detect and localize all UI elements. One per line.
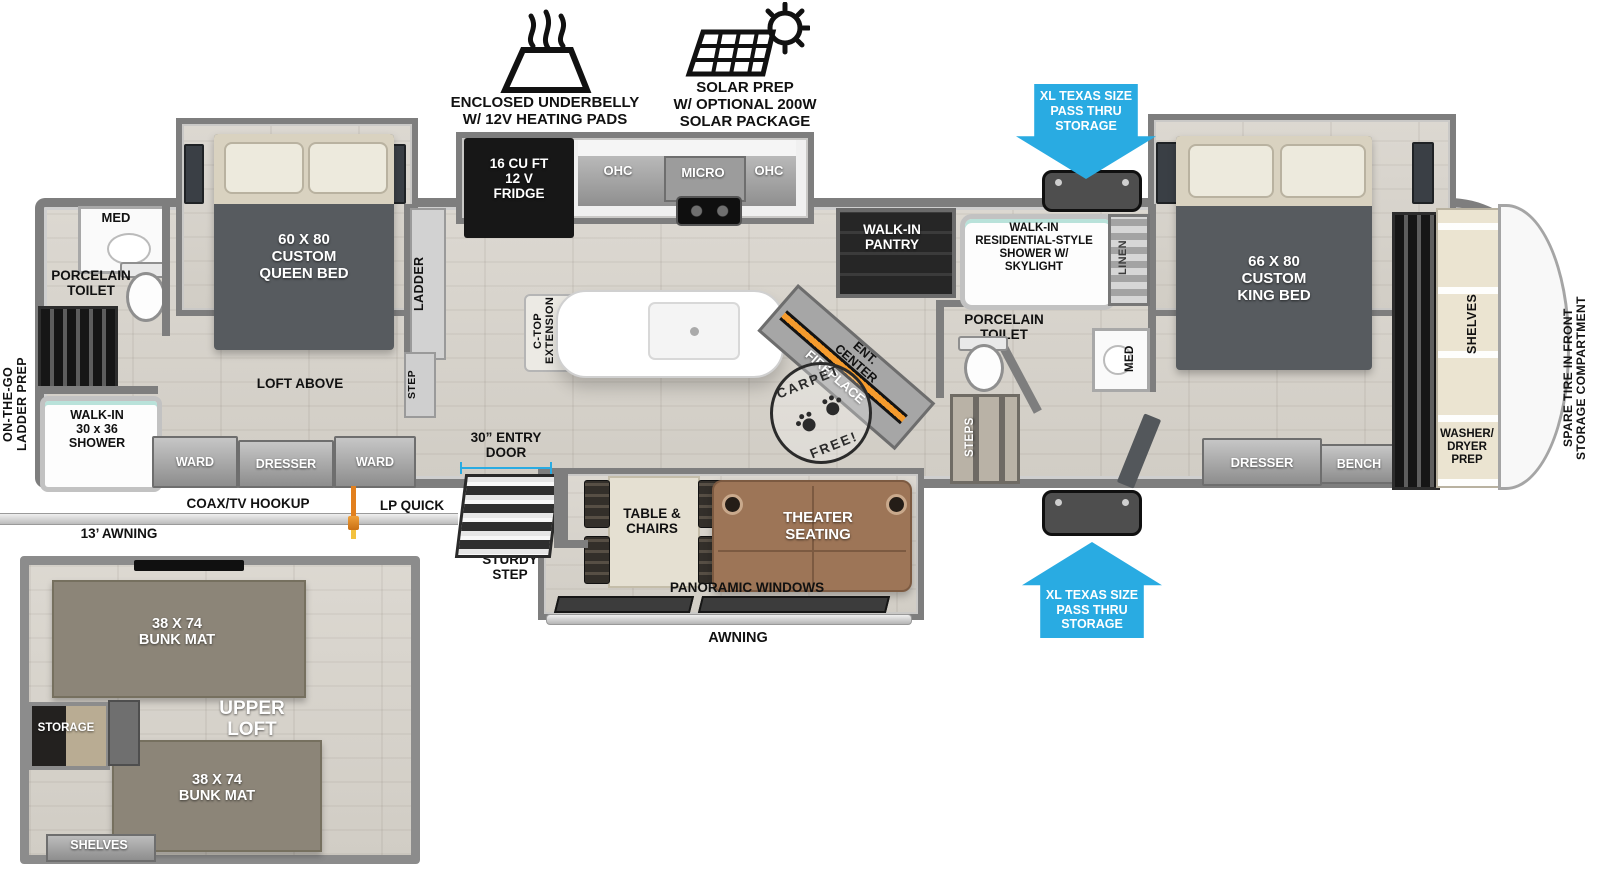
main-awning-bar bbox=[546, 614, 912, 625]
floorplan-stage: ENCLOSED UNDERBELLY W/ 12V HEATING PADS … bbox=[0, 0, 1600, 884]
paw-print-icon bbox=[800, 416, 818, 434]
rear-bath-sink bbox=[107, 233, 151, 265]
loft-shelves-label: SHELVES bbox=[48, 838, 150, 852]
passthru-arrow-bottom-label: XL TEXAS SIZE PASS THRU STORAGE bbox=[1046, 588, 1138, 632]
fridge-label: 16 CU FT 12 V FRIDGE bbox=[468, 156, 570, 201]
kitchen-island bbox=[556, 290, 784, 378]
rear-shower-wall bbox=[38, 386, 158, 394]
bunk-mat-top-label: 38 X 74 BUNK MAT bbox=[92, 616, 262, 648]
queen-pillow-right bbox=[308, 142, 388, 194]
sofa-seam bbox=[718, 550, 906, 552]
ward-left-label: WARD bbox=[176, 455, 214, 469]
bench: BENCH bbox=[1320, 444, 1398, 484]
pantry-label: WALK-IN PANTRY bbox=[840, 222, 944, 252]
table-chairs-label: TABLE & CHAIRS bbox=[600, 506, 704, 536]
lp-quick-connect bbox=[351, 486, 356, 516]
passthru-hatch-bottom bbox=[1042, 490, 1142, 536]
passthru-arrow-top: XL TEXAS SIZE PASS THRU STORAGE bbox=[1016, 84, 1156, 179]
cupholder bbox=[886, 494, 907, 515]
awning-13-label: 13’ AWNING bbox=[56, 526, 182, 541]
loft-skylight bbox=[134, 560, 244, 571]
king-window-left bbox=[1156, 142, 1178, 204]
enclosed-underbelly-label: ENCLOSED UNDERBELLY W/ 12V HEATING PADS bbox=[430, 95, 660, 129]
queen-bed-label: 60 X 80 CUSTOM QUEEN BED bbox=[224, 232, 384, 282]
loft-storage bbox=[28, 702, 110, 770]
upper-loft-label: UPPER LOFT bbox=[182, 698, 322, 741]
king-pillow-left bbox=[1188, 144, 1274, 198]
king-dresser: DRESSER bbox=[1202, 438, 1322, 486]
ward-left: WARD bbox=[152, 436, 238, 488]
island-sink bbox=[648, 302, 740, 360]
ladder-label: LADDER bbox=[413, 224, 427, 344]
ohc-right-label: OHC bbox=[740, 164, 798, 179]
king-dresser-label: DRESSER bbox=[1231, 455, 1294, 470]
solar-prep-label: SOLAR PREP W/ OPTIONAL 200W SOLAR PACKAG… bbox=[640, 80, 850, 130]
rear-shower-label: WALK-IN 30 x 36 SHOWER bbox=[48, 408, 146, 450]
cooktop bbox=[676, 196, 742, 226]
main-awning-label: AWNING bbox=[690, 630, 786, 646]
lp-quick-connect-tip bbox=[351, 530, 356, 539]
king-window-right bbox=[1412, 142, 1434, 204]
entry-half-wall bbox=[554, 468, 568, 548]
loft-storage-label: STORAGE bbox=[26, 722, 106, 735]
ohc-left-label: OHC bbox=[586, 164, 650, 179]
ward-right: WARD bbox=[334, 436, 416, 488]
passthru-arrow-bottom: XL TEXAS SIZE PASS THRU STORAGE bbox=[1022, 542, 1162, 638]
panoramic-window bbox=[698, 596, 890, 613]
mid-med-cabinet bbox=[1092, 328, 1150, 392]
bench-label: BENCH bbox=[1337, 457, 1381, 471]
loft-above-label: LOFT ABOVE bbox=[240, 376, 360, 391]
queen-window-left bbox=[184, 144, 204, 204]
panoramic-windows-label: PANORAMIC WINDOWS bbox=[642, 580, 852, 595]
queen-pillow-left bbox=[224, 142, 304, 194]
lp-quick-connect-nozzle bbox=[348, 516, 359, 530]
coax-tv-hookup-label: COAX/TV HOOKUP bbox=[168, 496, 328, 511]
bunk-mat-bottom-label: 38 X 74 BUNK MAT bbox=[132, 772, 302, 804]
step-label: STEP bbox=[407, 358, 419, 410]
rear-toilet-label: PORCELAIN TOILET bbox=[38, 268, 144, 298]
rear-bath-wall bbox=[162, 204, 170, 336]
passthru-hatch-top bbox=[1042, 170, 1142, 212]
entry-steps bbox=[455, 474, 561, 558]
shelves-label: SHELVES bbox=[1466, 274, 1480, 374]
king-pillow-right bbox=[1280, 144, 1366, 198]
loft-divider bbox=[108, 700, 140, 766]
rear-awning-bar bbox=[0, 513, 458, 525]
ladder-prep-label: ON-THE-GO LADDER PREP bbox=[2, 324, 30, 484]
spare-tire-label: SPARE TIRE IN FRONT STORAGE COMPARTMENT bbox=[1562, 246, 1588, 510]
rear-dresser: DRESSER bbox=[238, 440, 334, 488]
enclosed-underbelly-icon bbox=[495, 6, 595, 94]
panoramic-window bbox=[554, 596, 694, 613]
rear-dresser-label: DRESSER bbox=[256, 457, 316, 471]
microwave-label: MICRO bbox=[666, 166, 740, 181]
entry-door-dimension-line bbox=[460, 462, 552, 474]
paw-print-icon bbox=[826, 402, 840, 416]
rear-med-label: MED bbox=[84, 211, 148, 226]
ward-right-label: WARD bbox=[356, 455, 394, 469]
steps-label: STEPS bbox=[964, 404, 977, 470]
theater-seating-label: THEATER SEATING bbox=[748, 510, 888, 544]
cupholder bbox=[722, 494, 743, 515]
solar-prep-icon bbox=[685, 2, 810, 82]
mid-toilet bbox=[964, 344, 1004, 392]
entry-door-label: 30” ENTRY DOOR bbox=[450, 430, 562, 460]
midbath-left-wall bbox=[936, 300, 944, 398]
linen-label: LINEN bbox=[1117, 228, 1129, 288]
island-faucet bbox=[690, 327, 699, 336]
passthru-arrow-top-label: XL TEXAS SIZE PASS THRU STORAGE bbox=[1040, 89, 1132, 179]
washer-dryer-label: WASHER/ DRYER PREP bbox=[1424, 428, 1510, 467]
bedroom-steps bbox=[950, 394, 1020, 484]
mid-shower-label: WALK-IN RESIDENTIAL-STYLE SHOWER W/ SKYL… bbox=[962, 222, 1106, 274]
mid-med-label: MED bbox=[1124, 334, 1137, 384]
rear-wardrobe-slats bbox=[38, 306, 118, 392]
ctop-extension-label: C-TOP EXTENSION bbox=[532, 298, 556, 364]
entry-half-wall-stub bbox=[554, 540, 588, 548]
king-bed-label: 66 X 80 CUSTOM KING BED bbox=[1186, 254, 1362, 304]
